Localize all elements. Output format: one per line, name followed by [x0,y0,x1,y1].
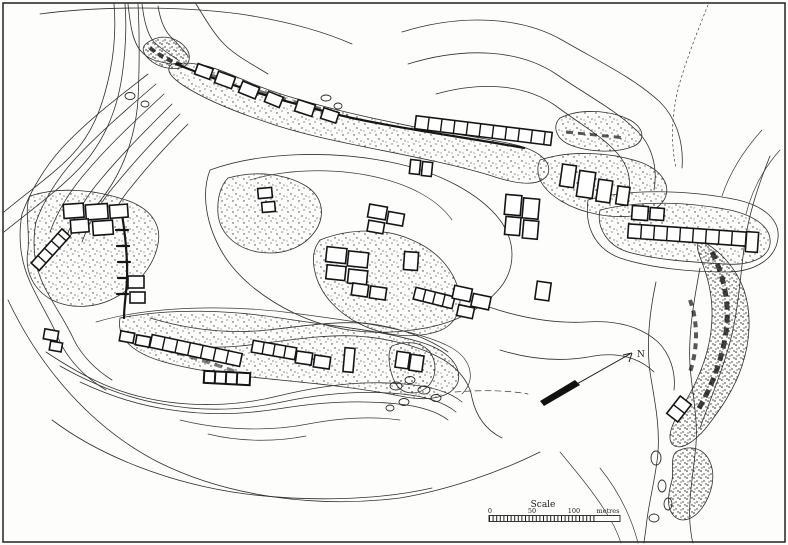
north-label: N [637,350,645,360]
central-west-stipple [218,174,322,253]
scale-bar-extension [594,516,620,522]
scale-tick-100: 100 [568,507,580,515]
scale-tick-0: 0 [488,507,492,515]
site-plan-map: N Scale 0 50 100 metres [0,0,788,545]
scale-unit-label: metres [597,507,620,515]
scale-tick-50: 50 [528,507,536,515]
map-canvas: N Scale 0 50 100 metres [0,0,788,545]
south-square-rooms [204,371,251,385]
